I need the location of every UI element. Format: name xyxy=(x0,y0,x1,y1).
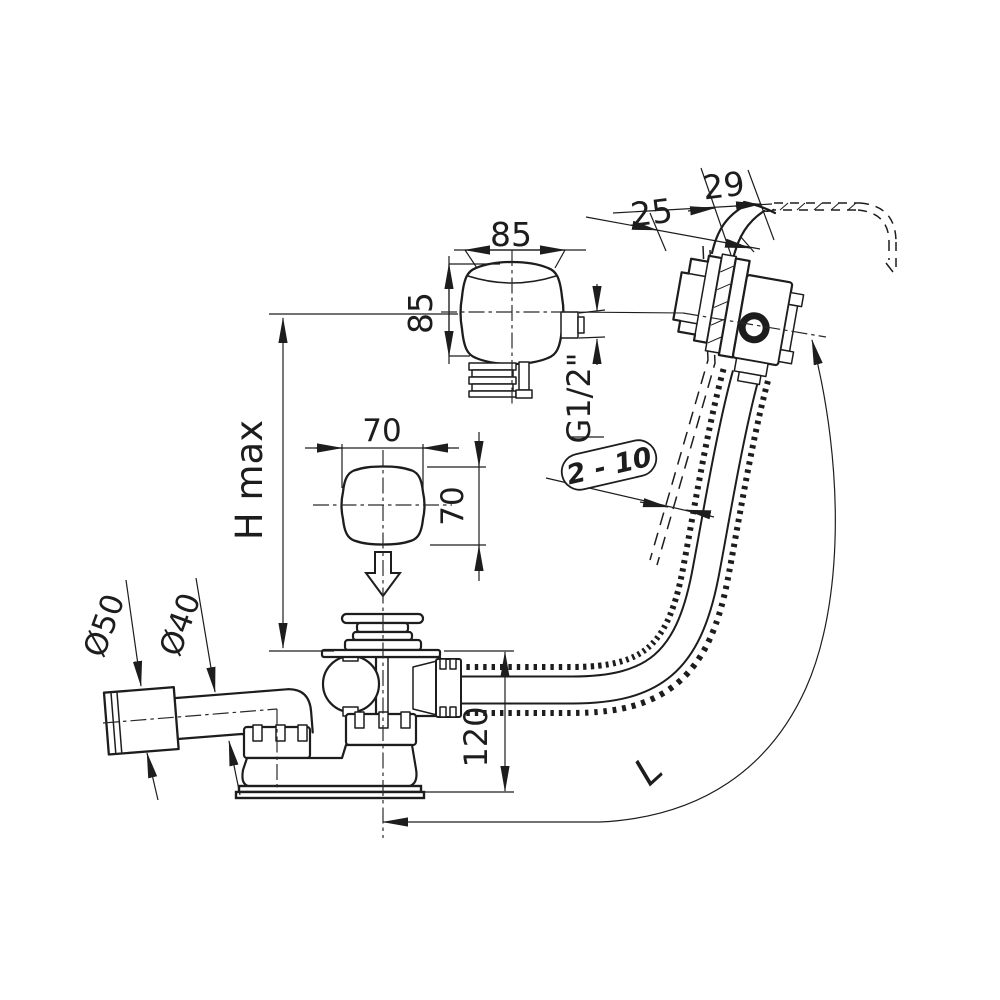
overflow-port-icon xyxy=(740,314,768,342)
label-29: 29 xyxy=(700,164,746,208)
background xyxy=(0,0,1000,1000)
mounting-flange xyxy=(236,786,424,798)
label-thread: G1/2" xyxy=(560,352,598,443)
threaded-stub xyxy=(469,363,516,397)
ball-joint xyxy=(323,656,379,712)
label-70-width: 70 xyxy=(362,413,401,449)
drain-top-flange xyxy=(322,650,440,657)
side-port xyxy=(561,312,578,338)
pull-rod xyxy=(519,362,529,390)
drain-lock-nut xyxy=(346,712,416,745)
label-85-width: 85 xyxy=(490,215,532,254)
label-85-height: 85 xyxy=(401,292,440,334)
label-25: 25 xyxy=(628,191,674,235)
hose-taper xyxy=(413,661,437,715)
label-120: 120 xyxy=(457,706,495,767)
label-70-height: 70 xyxy=(435,486,471,525)
bath-waste-drawing: 29 25 85 85 xyxy=(0,0,1000,1000)
label-hmax: H max xyxy=(228,420,271,540)
technical-drawing-page: 29 25 85 85 xyxy=(0,0,1000,1000)
